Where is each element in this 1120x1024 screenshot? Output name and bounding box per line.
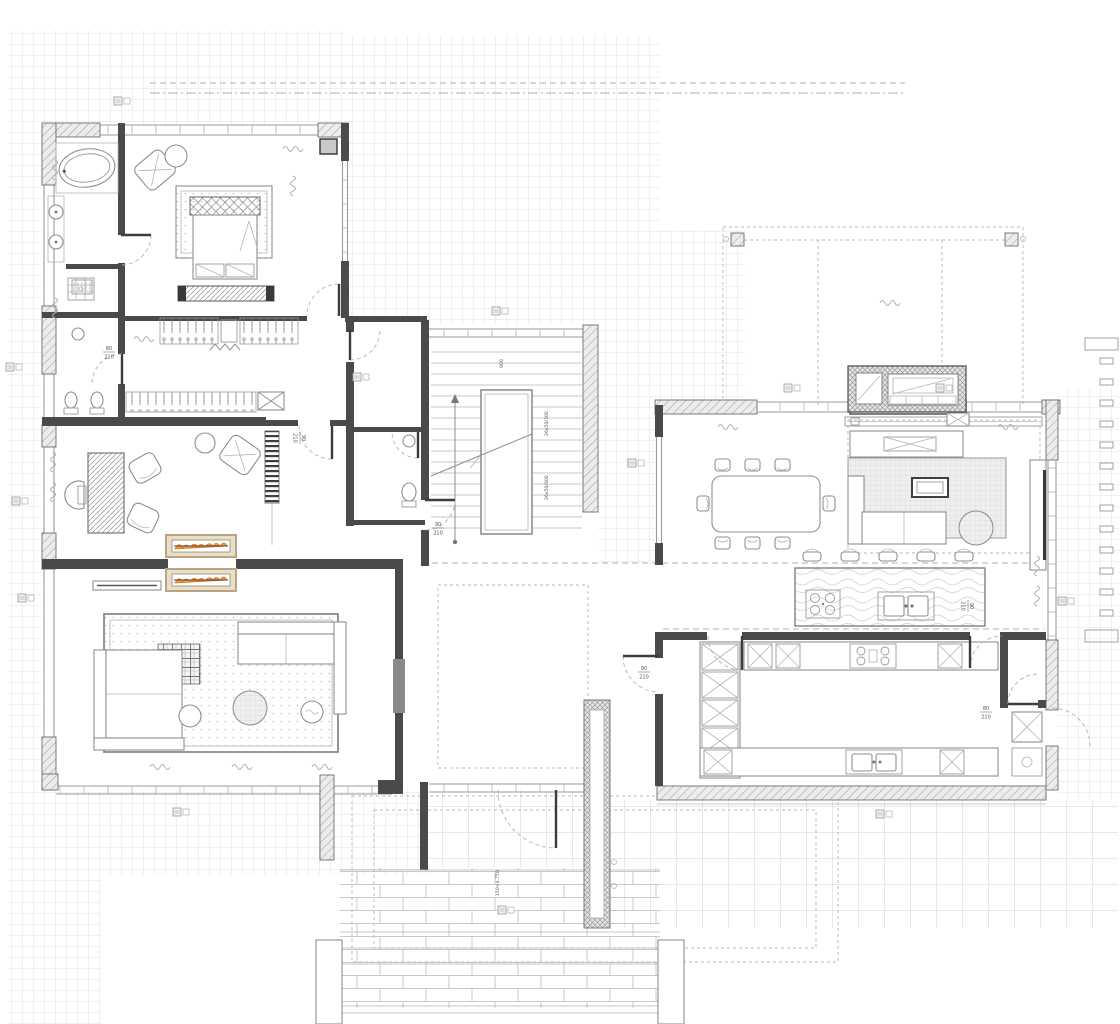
reference-tag xyxy=(628,459,644,467)
bedside-bench xyxy=(178,286,274,301)
counter-bottom-run xyxy=(700,748,998,776)
svg-text:80: 80 xyxy=(983,706,989,712)
duct-column xyxy=(320,139,337,154)
svg-text:90: 90 xyxy=(968,603,974,609)
porch-pillar xyxy=(320,775,334,860)
fence-slat xyxy=(1100,379,1113,385)
fence-slat xyxy=(1100,484,1113,490)
fence-slat xyxy=(1100,505,1113,511)
fence-slat xyxy=(1100,463,1113,469)
svg-text:90: 90 xyxy=(300,435,306,441)
pergola-column xyxy=(1005,233,1018,246)
step-pillar xyxy=(316,940,342,1024)
desk xyxy=(88,453,124,533)
svg-text:80: 80 xyxy=(106,346,112,352)
fence-slat xyxy=(1100,358,1113,364)
washbasin xyxy=(72,328,84,340)
dining-table xyxy=(712,476,820,532)
svg-text:210: 210 xyxy=(433,531,443,537)
note-label: 26x50/300 xyxy=(544,411,550,436)
fence-slat xyxy=(1100,400,1113,406)
reference-tag xyxy=(18,594,34,602)
note-label: 26x50/300 xyxy=(544,475,550,500)
reference-tag xyxy=(784,384,800,392)
reference-tag xyxy=(1058,597,1074,605)
toilet xyxy=(402,483,416,501)
svg-text:26x50/300: 26x50/300 xyxy=(544,411,550,436)
squiggle-mark xyxy=(880,301,900,306)
svg-text:90: 90 xyxy=(641,666,647,672)
media-cabinet xyxy=(850,431,963,457)
tv xyxy=(1043,470,1046,560)
headboard xyxy=(190,197,260,215)
stair-void xyxy=(481,390,532,534)
office-chair xyxy=(65,481,86,509)
note-label: 150+4.750 xyxy=(495,870,501,896)
floor-plan: 80210902109021090210902108021026x50/3002… xyxy=(0,0,1120,1024)
fence-slat xyxy=(1100,610,1113,616)
pouf xyxy=(233,691,267,725)
svg-text:150+4.750: 150+4.750 xyxy=(495,870,501,896)
squiggle-mark xyxy=(51,452,56,472)
reference-tag xyxy=(173,808,189,816)
svg-text:210: 210 xyxy=(960,601,966,611)
living-room xyxy=(94,614,346,752)
reference-tag xyxy=(114,97,130,105)
svg-text:900: 900 xyxy=(499,359,505,368)
shelving-unit xyxy=(265,431,279,503)
reference-tag xyxy=(6,363,22,371)
fence-slat xyxy=(1100,589,1113,595)
washbasin xyxy=(403,435,415,447)
reference-tag xyxy=(498,906,514,914)
walk-in-closet xyxy=(126,392,284,412)
closet-cabinet xyxy=(258,392,284,410)
fence-slat xyxy=(1100,421,1113,427)
floor-plan-drawing: 80210902109021090210902108021026x50/3002… xyxy=(0,0,1120,1024)
door-size-label: 90210 xyxy=(638,666,650,681)
svg-text:210: 210 xyxy=(981,715,991,721)
step-pillar xyxy=(658,940,684,1024)
svg-text:210: 210 xyxy=(639,675,649,681)
fence-slat xyxy=(1100,442,1113,448)
svg-text:90: 90 xyxy=(435,522,441,528)
svg-text:210: 210 xyxy=(292,433,298,443)
reference-tag xyxy=(936,384,952,392)
svg-text:210: 210 xyxy=(104,355,114,361)
counter-top-run xyxy=(744,642,998,670)
reference-tag xyxy=(876,810,892,818)
reference-tag xyxy=(492,307,508,315)
pergola-column xyxy=(731,233,744,246)
fence-slat xyxy=(1100,568,1113,574)
svg-text:26x50/300: 26x50/300 xyxy=(544,475,550,500)
wardrobe-hangers xyxy=(126,392,256,412)
sofa xyxy=(94,650,184,750)
reference-tag xyxy=(12,497,28,505)
reference-tag xyxy=(353,373,369,381)
double-bed xyxy=(193,215,257,279)
pouf xyxy=(179,705,201,727)
squiggle-mark xyxy=(51,482,56,502)
fence-slat xyxy=(1100,526,1113,532)
pouf xyxy=(959,511,993,545)
side-table xyxy=(195,433,215,453)
note-label: 900 xyxy=(499,359,505,368)
fence-slat xyxy=(1100,547,1113,553)
side-table xyxy=(165,145,187,167)
